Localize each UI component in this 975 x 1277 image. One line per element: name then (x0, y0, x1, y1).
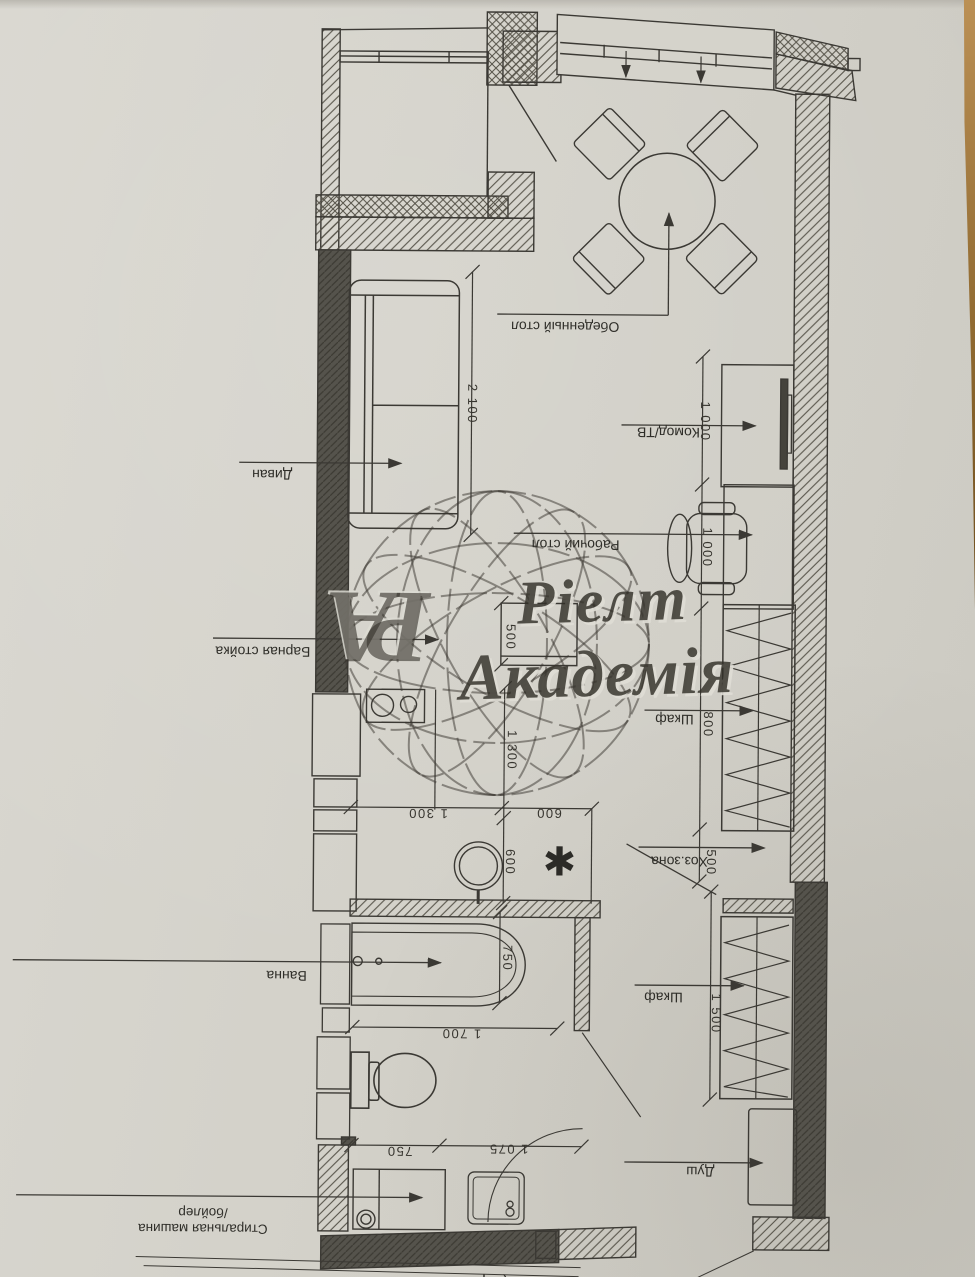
floor-plan-photo: Обеденный стол Диван Комод/ТВ Рабочий ст… (0, 0, 975, 1277)
label-dresser-tv: Комод/ТВ (637, 424, 700, 441)
sofa (348, 280, 460, 529)
label-shower: Душ (686, 1163, 714, 1180)
dining-table (619, 153, 716, 250)
watermark-line1: Ріелт (516, 564, 689, 640)
watermark-monogram: РА (343, 567, 432, 687)
label-dining-table: Обеденный стол (511, 318, 619, 336)
dim-passage-width: 600 (536, 806, 562, 821)
dim-wc-width: 750 (386, 1144, 412, 1159)
boiler-unit (468, 1172, 524, 1224)
label-washing-machine: Стиральная машина /бойлер (138, 1203, 268, 1236)
balcony-door-swing (508, 85, 557, 161)
label-bar-counter: Барная стойка (215, 643, 310, 660)
label-utility-zone: Хоз.зона (651, 853, 708, 870)
dim-passage-depth: 600 (503, 849, 518, 875)
tv (780, 379, 792, 469)
floor-plan-drawing: Обеденный стол Диван Комод/ТВ Рабочий ст… (0, 0, 975, 1277)
label-sofa: Диван (252, 466, 292, 483)
label-washing-machine-line2: /бойлер (138, 1203, 268, 1220)
dim-wardrobe-upper-width: 800 (701, 711, 716, 737)
kitchen-sink (454, 842, 502, 904)
dim-hall-width: 1 075 (488, 1142, 528, 1157)
asterisk-symbol: ✱ (543, 839, 577, 885)
dim-utility-width: 500 (704, 849, 719, 875)
label-washing-machine-line1: Стиральная машина (138, 1220, 268, 1237)
watermark-line2: Академія (458, 633, 735, 717)
floor-plan-linework (0, 0, 975, 1277)
bathroom-cabinets (317, 924, 352, 1139)
dim-sofa-length: 2 100 (465, 384, 480, 424)
label-desk: Рабочий стол (532, 536, 620, 553)
dining-chairs (572, 107, 760, 297)
label-wardrobe-lower: Шкаф (644, 989, 683, 1006)
dim-bath-width: 750 (500, 945, 515, 971)
toilet (351, 1052, 436, 1109)
bathroom-door (582, 1033, 642, 1117)
dim-kitchen-width: 1 300 (408, 806, 448, 821)
wardrobe-lower (720, 917, 793, 1099)
label-bottom-partial: (вариант (443, 1272, 509, 1277)
washing-machine (353, 1169, 445, 1230)
window (339, 13, 774, 198)
dim-desk-width: 1 000 (700, 527, 715, 567)
label-wardrobe-upper: Шкаф (655, 711, 694, 728)
dim-kitchen-depth: 1 300 (505, 730, 520, 770)
label-bathtub: Ванна (266, 967, 306, 984)
dim-bath-length: 1 700 (441, 1026, 481, 1041)
kitchen-units (311, 694, 361, 911)
shower-tray (748, 1109, 797, 1205)
dim-wardrobe-lower-width: 1 500 (709, 994, 724, 1034)
dim-dresser-width: 1 000 (698, 401, 713, 441)
